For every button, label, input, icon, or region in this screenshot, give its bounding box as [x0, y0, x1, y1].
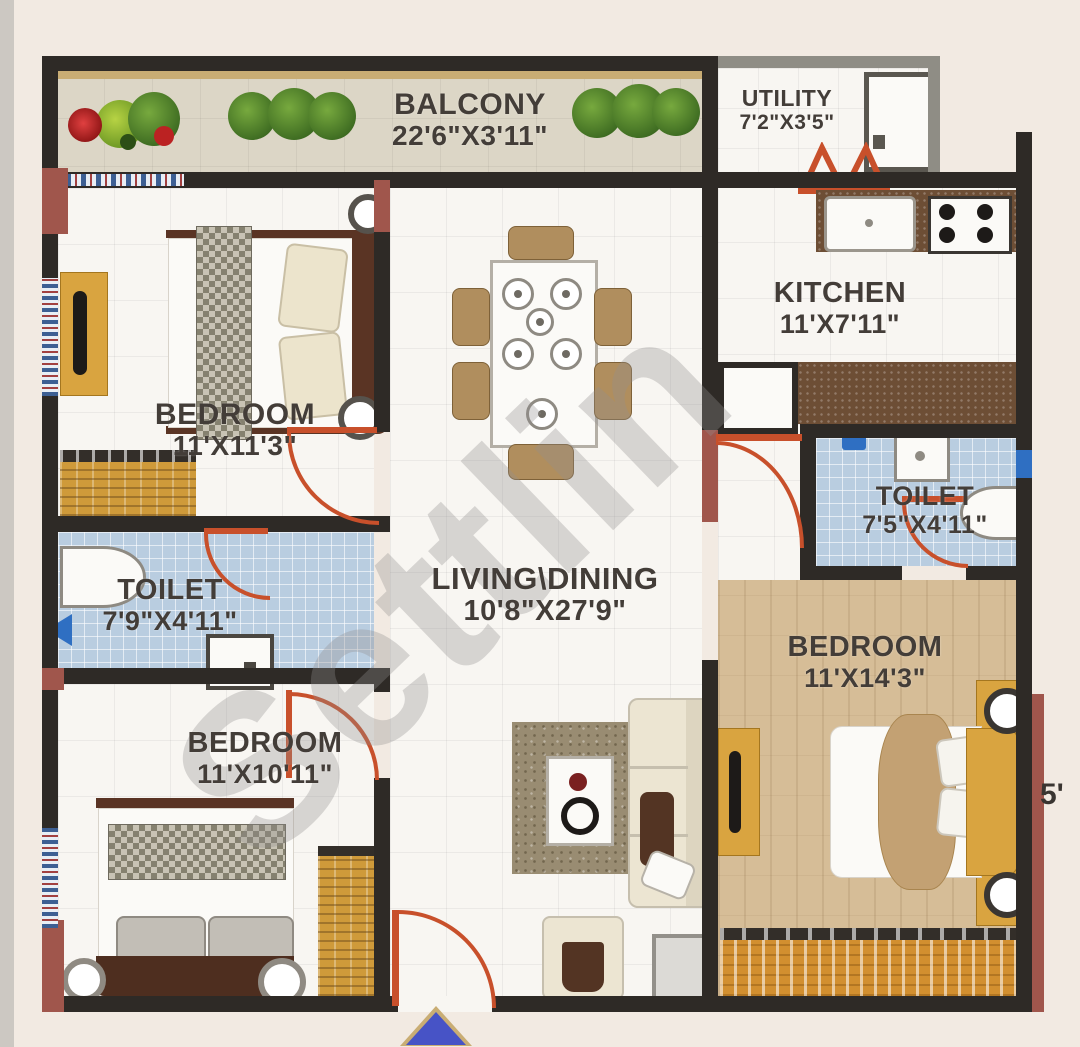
balcony-rail	[56, 70, 704, 79]
room-label-balcony: BALCONY 22'6"X3'11"	[330, 88, 610, 152]
wall-accent-bottomleft	[42, 920, 64, 1012]
tv-unit	[718, 728, 760, 856]
fridge-icon	[718, 362, 798, 434]
wall-toilet2-top	[800, 424, 1032, 438]
window-bedroom1	[42, 278, 58, 396]
wall-accent-toilet-left	[42, 668, 64, 690]
tv-unit	[60, 272, 108, 396]
dining-chair	[508, 444, 574, 480]
dining-chair	[508, 226, 574, 260]
wardrobe	[720, 928, 1016, 996]
room-label-bedroom1: BEDROOM 11'X11'3"	[105, 398, 365, 462]
wall-bottom-right	[492, 996, 1032, 1012]
pillow	[277, 243, 349, 334]
room-label-utility: UTILITY 7'2"X3'5"	[712, 86, 862, 134]
window-bedroom3	[42, 828, 58, 928]
washbasin-icon	[894, 432, 950, 482]
plate-icon	[526, 308, 554, 336]
wall-bed3-living	[374, 778, 390, 1012]
dining-chair	[594, 288, 632, 346]
wardrobe	[318, 846, 374, 996]
flower-icon	[62, 86, 192, 174]
wall-toilet2-bottom-a	[800, 566, 902, 580]
wall-bed1-living	[374, 232, 390, 432]
plate-icon	[550, 338, 582, 370]
dining-chair	[452, 288, 490, 346]
floor-plan: Settlin BALCONY 22'6"X3'11" UTILITY 7'2"…	[0, 0, 1080, 1047]
wall-toilet2-bottom-b	[966, 566, 1032, 580]
bed	[830, 722, 1016, 880]
plate-icon	[550, 278, 582, 310]
room-label-living: LIVING\DINING 10'8"X27'9"	[395, 562, 695, 628]
armchair	[542, 916, 624, 1000]
wall-utility-top	[712, 56, 940, 68]
wall-top	[42, 56, 718, 71]
entrance-arrow-icon	[406, 1012, 466, 1045]
window-balcony-bedroom	[66, 174, 184, 186]
wall-utility-bottom	[702, 172, 1032, 188]
wall-accent-bed1-top	[374, 180, 390, 232]
room-label-toilet2: TOILET 7'5"X4'11"	[830, 482, 1020, 539]
headboard	[966, 728, 1018, 876]
room-label-bedroom2: BEDROOM 11'X14'3"	[730, 632, 1000, 694]
door-leaf-bedroom2	[716, 434, 802, 441]
image-edge-strip	[0, 0, 14, 1047]
wall-toilet1-bed3	[42, 668, 390, 684]
plate-icon	[502, 338, 534, 370]
plate-icon	[526, 398, 558, 430]
room-label-bedroom3: BEDROOM 11'X10'11"	[135, 728, 395, 790]
plate-icon	[502, 278, 534, 310]
stove-icon	[928, 196, 1012, 254]
coffee-table	[546, 756, 614, 846]
partial-dimension-label: 5'	[1040, 778, 1064, 812]
room-label-toilet1: TOILET 7'9"X4'11"	[75, 575, 265, 637]
bush-icon	[652, 88, 700, 136]
wall-toilet2-left	[800, 424, 816, 580]
window-toilet2	[1016, 450, 1032, 478]
blanket	[108, 824, 286, 880]
dining-chair	[594, 362, 632, 420]
wall-bottom-left	[42, 996, 398, 1012]
wall-utility-right	[928, 56, 940, 174]
wall-bed3-living-stub	[374, 684, 390, 692]
room-label-kitchen: KITCHEN 11'X7'11"	[745, 278, 935, 340]
sink-icon	[824, 196, 916, 252]
wall-accent-topleft	[42, 168, 68, 234]
kitchen-counter-bottom	[790, 362, 1016, 424]
dining-chair	[452, 362, 490, 420]
wall-center-lower	[702, 660, 718, 1012]
wall-accent-right	[1032, 694, 1044, 1012]
